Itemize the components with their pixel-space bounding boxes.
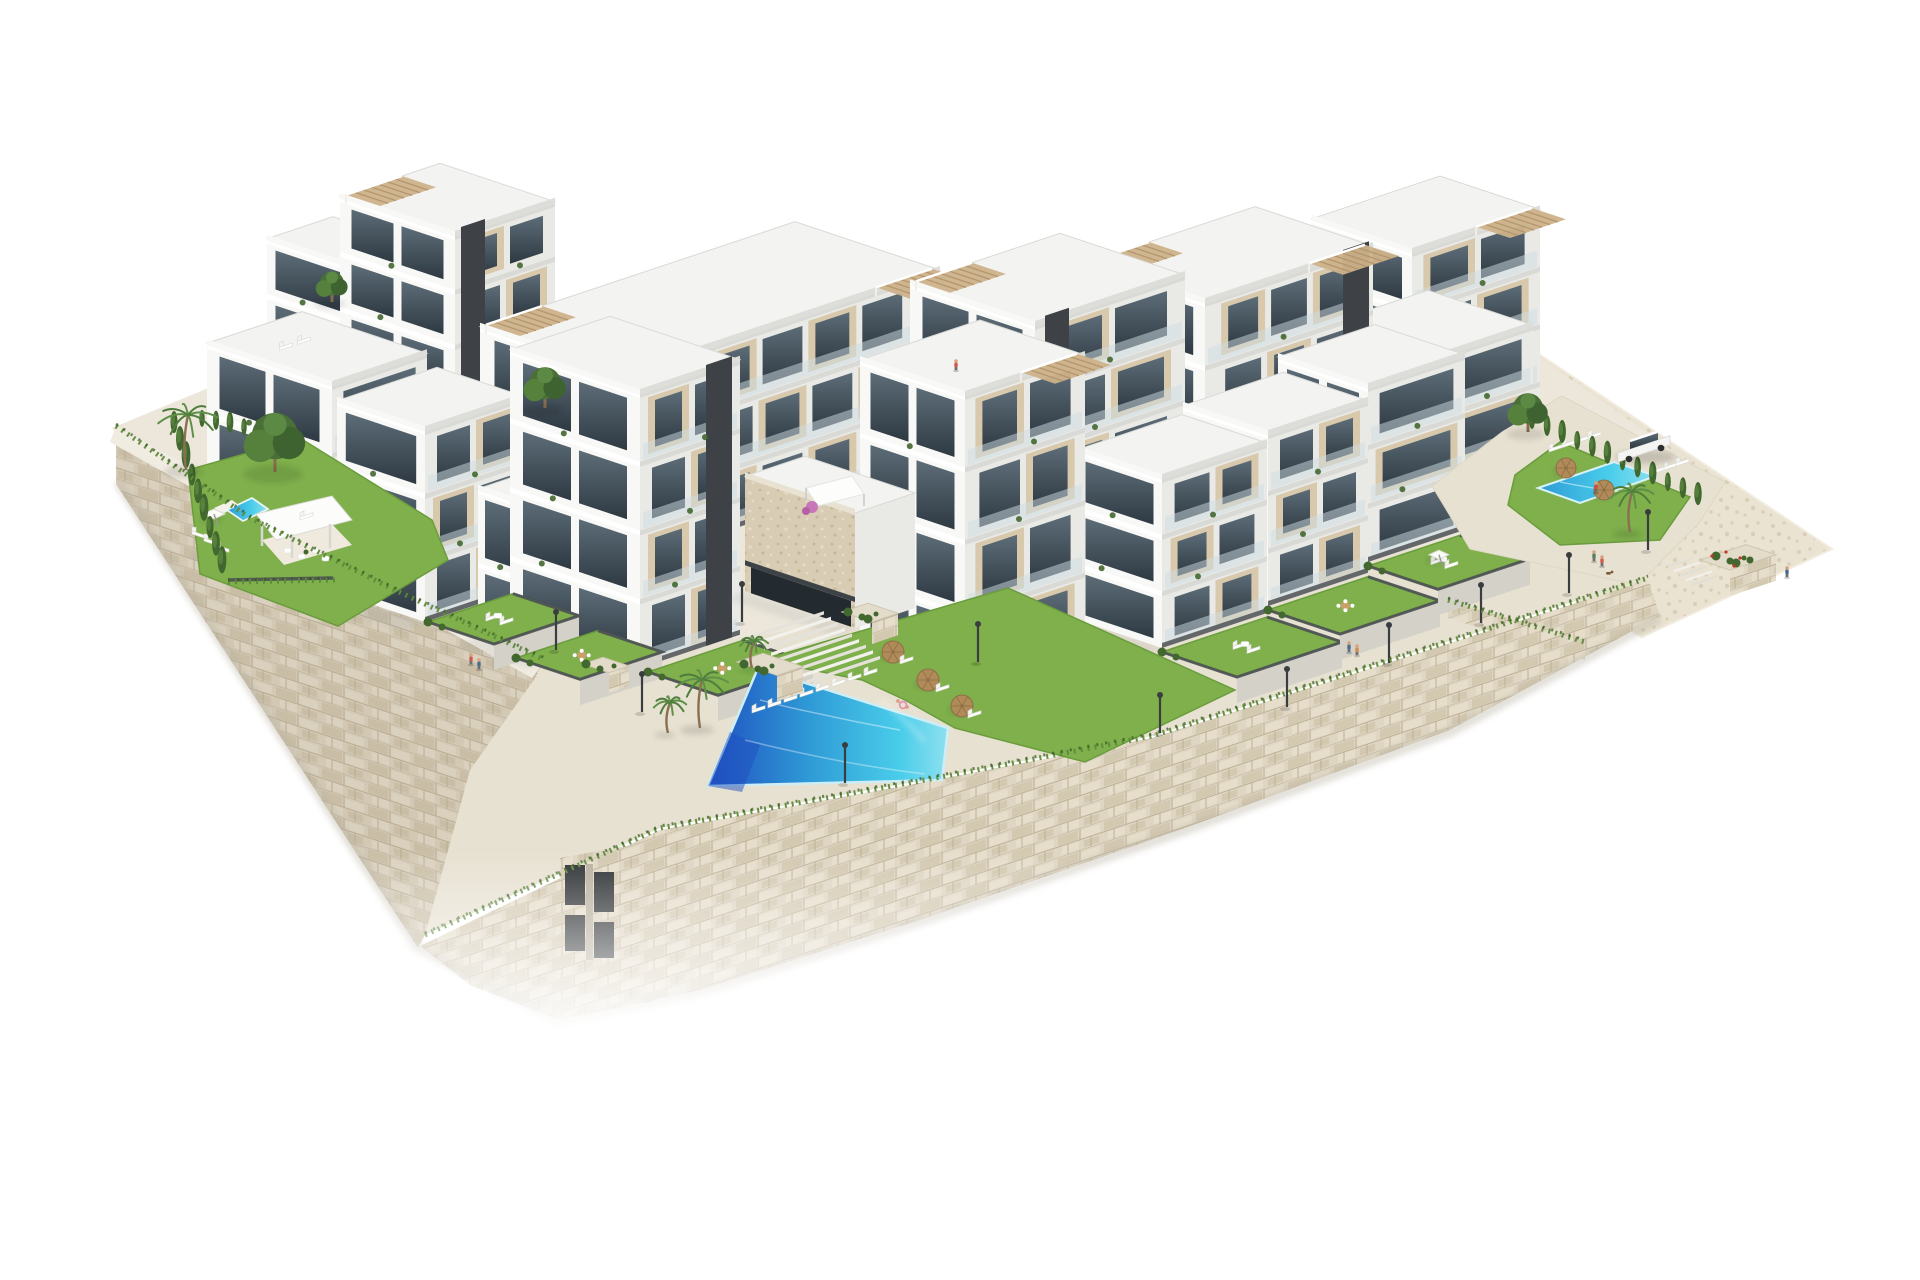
render-canvas: Aerial 3D architectural rendering of a t… (0, 0, 1920, 1280)
architectural-render-image: Aerial 3D architectural rendering of a t… (0, 0, 1920, 1280)
townhouse-right-1 (1057, 415, 1267, 657)
